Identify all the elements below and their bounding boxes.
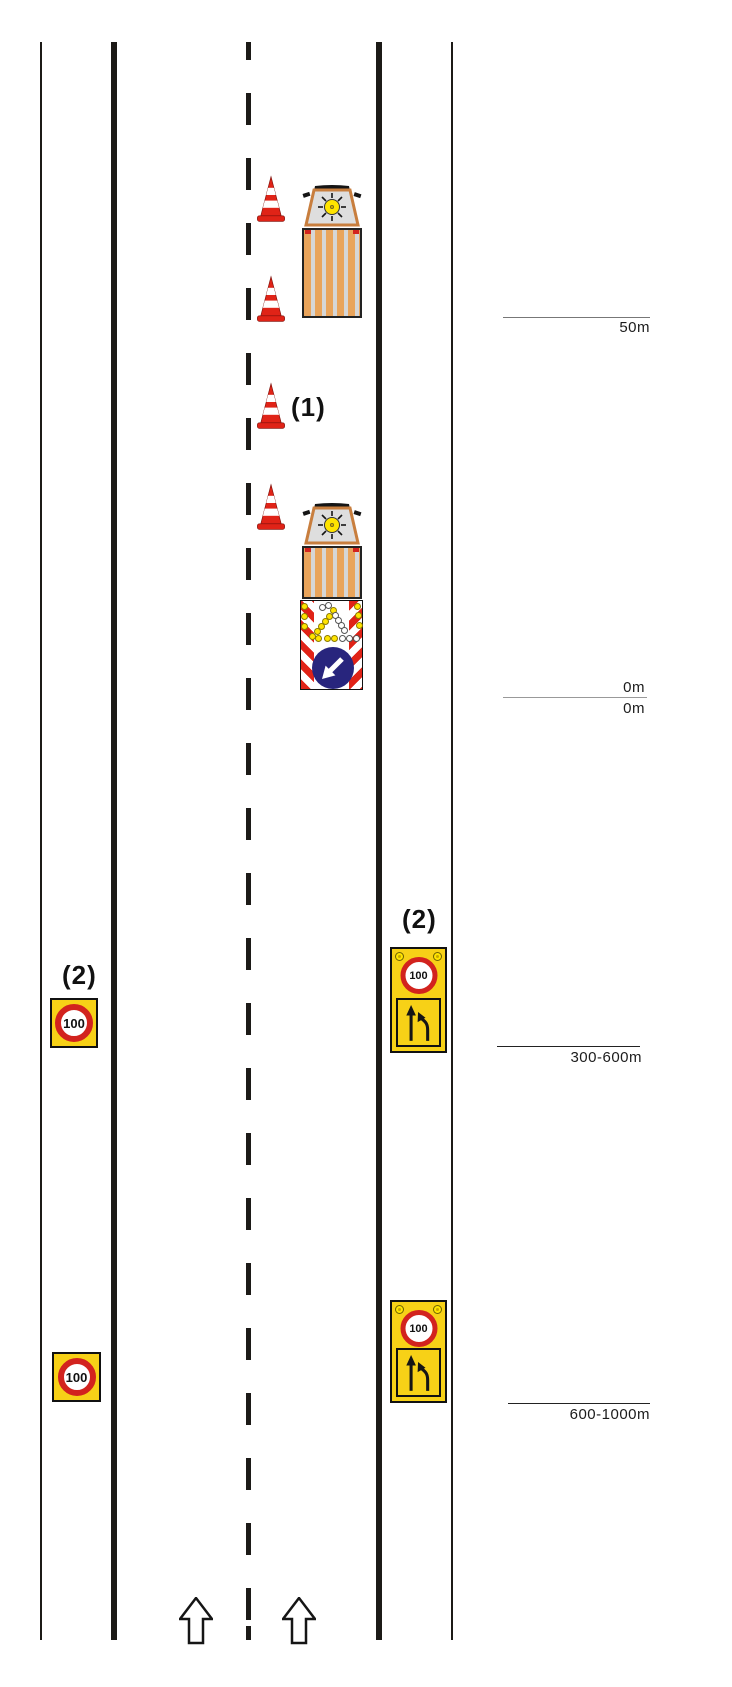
board-lamp [331, 635, 338, 642]
arrow-warning-board [300, 600, 363, 690]
marker-line [497, 1046, 640, 1047]
speed-limit-value: 100 [66, 1370, 88, 1385]
tail-light-icon [305, 230, 311, 234]
truck-cab-with-beacon-icon [302, 502, 362, 546]
speed-limit-roundel: 100 [55, 1004, 93, 1042]
speed-limit-roundel: 100 [58, 1358, 96, 1396]
board-lamp [353, 635, 360, 642]
traffic-cone-icon [255, 382, 287, 430]
right-sign-note: (2) [402, 904, 437, 935]
board-lamp [339, 635, 346, 642]
lane-line-left-solid [111, 42, 117, 1640]
speed-limit-sign: 100 [50, 998, 98, 1048]
sign-lamp-icon [395, 1305, 404, 1314]
lane-closure-sign: 100 [390, 1300, 447, 1403]
travel-direction-arrow-icon [282, 1597, 316, 1645]
board-lamp [301, 603, 308, 610]
roadworks-diagram: (1) (2) (2) [0, 0, 732, 1687]
board-lamp [354, 603, 361, 610]
board-lamp [346, 635, 353, 642]
speed-limit-value: 100 [409, 970, 427, 982]
traffic-cone-icon [255, 275, 287, 323]
road-edge-line-left [40, 42, 42, 1640]
sign-lamp-icon [395, 952, 404, 961]
board-lamp [356, 622, 363, 629]
marker-label: 50m [560, 319, 650, 336]
left-sign-note: (2) [62, 960, 97, 991]
tail-light-icon [353, 548, 359, 552]
lane-line-right-solid [376, 42, 382, 1640]
lane-merge-arrows-icon [398, 1350, 439, 1395]
tail-light-icon [353, 230, 359, 234]
marker-label: 0m [560, 679, 645, 696]
speed-limit-sign: 100 [52, 1352, 101, 1402]
marker-line [503, 697, 647, 698]
board-lamp [341, 627, 348, 634]
speed-limit-roundel: 100 [400, 1310, 437, 1347]
truck-bed [302, 546, 362, 599]
board-lamp [301, 613, 308, 620]
marker-line [503, 317, 650, 318]
marker-label: 0m [560, 700, 645, 717]
traffic-cone-icon [255, 175, 287, 223]
board-lamp [324, 635, 331, 642]
road-edge-line-right [451, 42, 453, 1640]
marker-label: 300-600m [542, 1049, 642, 1066]
keep-left-sign [312, 647, 354, 689]
travel-direction-arrow-icon [179, 1597, 213, 1645]
marker-line [508, 1403, 650, 1404]
board-lamp [301, 623, 308, 630]
speed-limit-value: 100 [63, 1016, 85, 1031]
lane-merge-panel [396, 998, 441, 1047]
lane-merge-arrows-icon [398, 1000, 439, 1045]
truck-cab-with-beacon-icon [302, 184, 362, 228]
speed-limit-value: 100 [409, 1323, 427, 1335]
marker-label: 600-1000m [540, 1406, 650, 1423]
speed-limit-roundel: 100 [400, 957, 437, 994]
sign-lamp-icon [433, 952, 442, 961]
keep-left-arrow-icon [312, 647, 354, 689]
cone-row-note: (1) [291, 392, 326, 423]
tail-light-icon [305, 548, 311, 552]
traffic-cone-icon [255, 483, 287, 531]
lane-closure-sign: 100 [390, 947, 447, 1053]
board-lamp [355, 612, 362, 619]
board-lamp [315, 635, 322, 642]
center-dashed-lane-line [246, 42, 251, 1640]
lane-merge-panel [396, 1348, 441, 1397]
truck-bed [302, 228, 362, 318]
sign-lamp-icon [433, 1305, 442, 1314]
